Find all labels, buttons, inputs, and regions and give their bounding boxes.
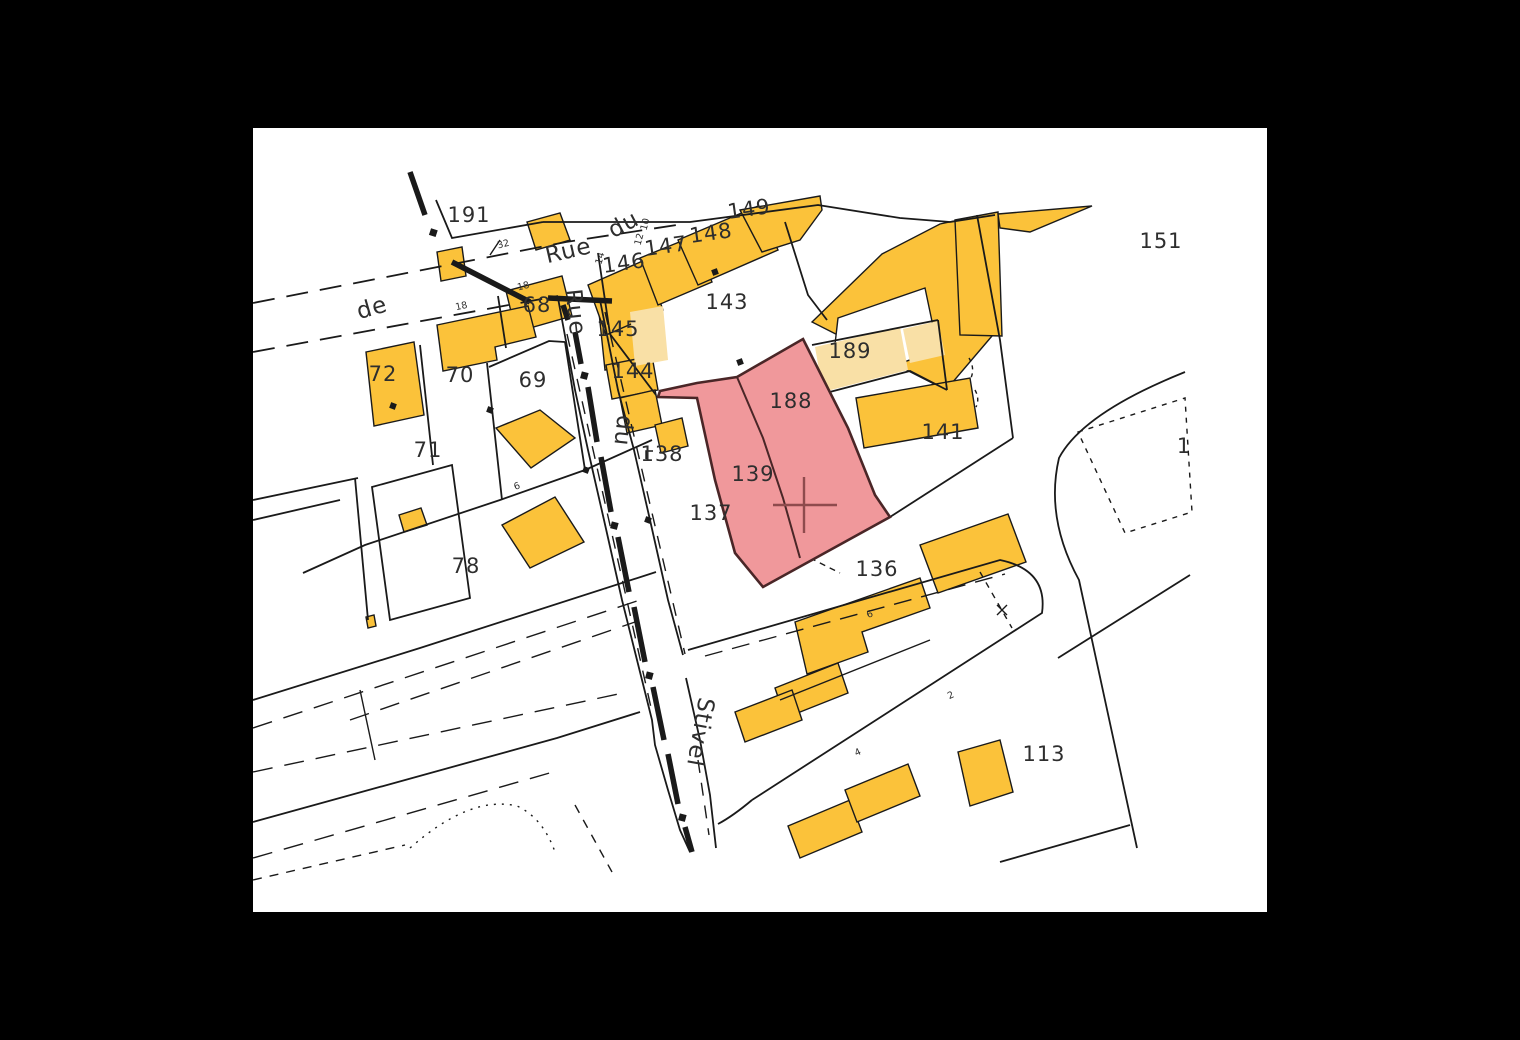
parcel-label-68: 68: [523, 293, 552, 317]
parcel-label-143: 143: [705, 290, 748, 314]
parcel-label-69: 69: [519, 368, 548, 392]
parcel-label-139: 139: [731, 462, 774, 486]
sw-dash: [253, 693, 623, 772]
parcel-label-188: 188: [769, 389, 812, 413]
building-70: [437, 306, 536, 371]
parcel-label-113: 113: [1022, 742, 1065, 766]
parcel-label-145: 145: [596, 317, 639, 341]
parcel-label-78: 78: [452, 554, 481, 578]
parcel-label-137: 137: [689, 501, 732, 525]
house-number-10: 10: [639, 217, 653, 232]
parcel-label-138: 138: [640, 442, 683, 466]
parcel-label-191: 191: [447, 203, 490, 227]
parcel-label-189: 189: [828, 339, 871, 363]
parcel-label-71: 71: [414, 438, 443, 462]
street-label-Rue: Rue: [560, 288, 591, 337]
fence-dash-136: [810, 558, 840, 573]
street-label-Stivel: Stivel: [681, 695, 719, 769]
sw-diagonal: [253, 712, 640, 822]
house-number-4: 4: [853, 746, 863, 759]
screenshot-root: 1911491481471461436814514418918814115172…: [0, 0, 1520, 1040]
house-number-18: 18: [454, 300, 468, 313]
parcel-label-141: 141: [921, 420, 964, 444]
dash-arc: [975, 390, 978, 407]
house-number-2: 2: [946, 689, 956, 702]
parcel-141-south: [890, 438, 1013, 517]
building-136-top: [920, 514, 1026, 593]
building-113-b: [845, 764, 920, 822]
boundary: [253, 500, 340, 520]
x-mark: [997, 605, 1007, 615]
building-113-a: [788, 800, 862, 858]
parcel-113-south: [1000, 825, 1130, 862]
building-136-c: [735, 690, 802, 742]
parcel-label-1: 1: [1177, 434, 1191, 458]
street-label-du: du: [608, 414, 637, 448]
house-number-6: 6: [512, 480, 521, 492]
parcel-label-144: 144: [611, 359, 654, 383]
building-ne-wedge: [998, 206, 1092, 232]
dotted-curve: [410, 804, 555, 852]
house-number-32: 32: [496, 238, 510, 252]
street-dash-lower: [698, 760, 709, 835]
parcel-label-136: 136: [855, 557, 898, 581]
boundary-151-113: [1058, 575, 1190, 658]
sw-dash: [575, 805, 612, 872]
map-canvas[interactable]: 1911491481471461436814514418918814115172…: [253, 128, 1267, 912]
sw-dash: [253, 845, 405, 880]
sw-dash: [350, 622, 635, 720]
sw-line: [360, 690, 375, 760]
street-label-de: de: [354, 292, 391, 325]
sw-dash: [253, 600, 640, 728]
sw-dash: [253, 770, 560, 858]
lane-merge: [718, 800, 752, 824]
parcel-71-outline: [372, 465, 470, 620]
parcel-label-70: 70: [446, 363, 475, 387]
road-curve-east: [1055, 372, 1185, 848]
dash-boundary: [980, 572, 1012, 628]
parcel-label-72: 72: [369, 362, 398, 386]
cadastre-svg: 1911491481471461436814514418918814115172…: [253, 128, 1267, 912]
building-69: [496, 410, 575, 468]
boundary: [253, 478, 358, 500]
building-78: [502, 497, 584, 568]
parcel-label-151: 151: [1139, 229, 1182, 253]
building-113-c: [958, 740, 1013, 806]
